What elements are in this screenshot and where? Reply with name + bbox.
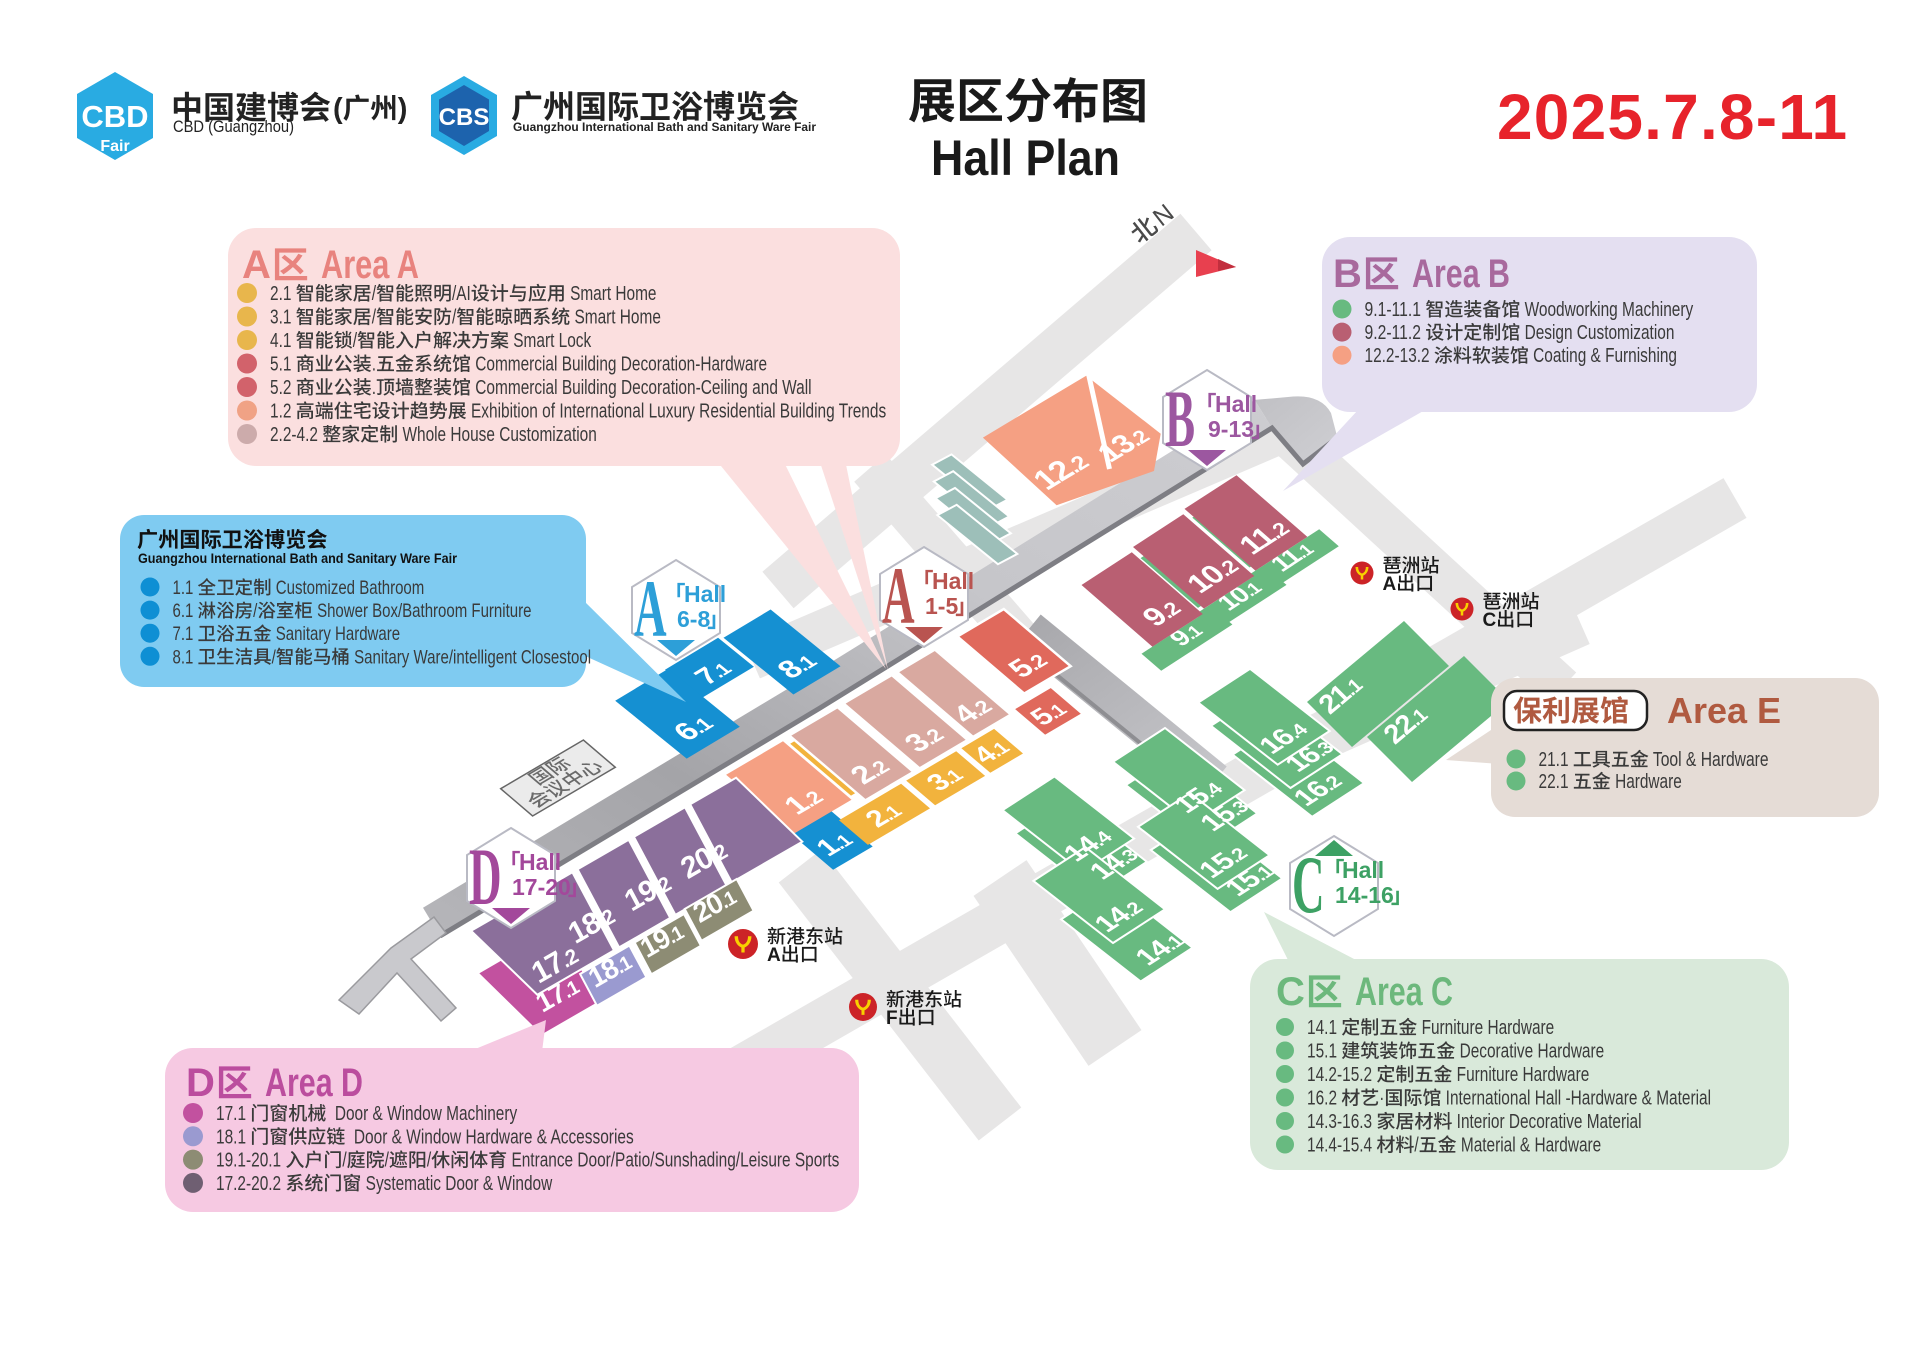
svg-text:Hall: Hall [684,581,726,607]
svg-text:9-13: 9-13 [1208,416,1254,442]
svg-text:Hardware: Hardware [1611,771,1682,793]
svg-text:14.3-16.3: 14.3-16.3 [1307,1111,1376,1133]
svg-text:1.2: 1.2 [270,401,296,423]
svg-text:Hall Plan: Hall Plan [931,130,1120,186]
svg-text:/: / [452,307,457,329]
svg-text:C: C [1292,840,1325,930]
svg-text:A: A [634,564,667,654]
svg-text:Hall: Hall [519,849,561,875]
svg-text:Guangzhou International Bath a: Guangzhou International Bath and Sanitar… [513,120,816,134]
svg-text:C: C [1276,970,1305,1014]
svg-text:3.1: 3.1 [270,307,296,329]
svg-text:1.1: 1.1 [173,577,198,599]
svg-text:7.1: 7.1 [173,623,198,645]
svg-text:D: D [469,832,502,922]
svg-text:Woodworking Machinery: Woodworking Machinery [1520,299,1693,321]
svg-text:16.2: 16.2 [1307,1088,1341,1110]
svg-text:·: · [1379,1088,1384,1110]
svg-text:Door & Window Machinery: Door & Window Machinery [326,1103,517,1125]
svg-text:/: / [342,1150,347,1172]
svg-text:C: C [1483,610,1497,631]
svg-text:14.1: 14.1 [1307,1017,1341,1039]
svg-text:6-8: 6-8 [677,606,710,632]
svg-text:18.1: 18.1 [216,1126,250,1148]
svg-text:14-16: 14-16 [1335,882,1394,908]
svg-text:9.2-11.2: 9.2-11.2 [1365,322,1426,344]
svg-text:Commercial Building Decoration: Commercial Building Decoration-Ceiling a… [471,377,812,399]
svg-text:/AI: /AI [452,283,471,305]
svg-text:Sanitary Hardware: Sanitary Hardware [272,623,401,645]
svg-text:): ) [398,93,408,125]
svg-text:/: / [427,1150,432,1172]
svg-text:A: A [1383,574,1397,595]
svg-text:Systematic Door & Window: Systematic Door & Window [361,1173,552,1195]
svg-text:Hall: Hall [1342,857,1384,883]
svg-text:Area C: Area C [1355,970,1453,1014]
svg-text:9.1-11.1: 9.1-11.1 [1365,299,1426,321]
svg-text:A: A [882,551,915,641]
svg-text:CBD (Guangzhou): CBD (Guangzhou) [173,118,294,136]
svg-text:International Hall -Hardware &: International Hall -Hardware & Material [1441,1088,1711,1110]
svg-text:/: / [372,283,377,305]
svg-text:2.2-4.2: 2.2-4.2 [270,424,322,446]
svg-text:/: / [272,646,277,668]
svg-text:Area E: Area E [1667,690,1781,731]
svg-text:14.4-15.4: 14.4-15.4 [1307,1135,1376,1157]
svg-text:A: A [242,243,271,287]
svg-text:Material & Hardware: Material & Hardware [1457,1135,1602,1157]
svg-text:CBD: CBD [81,99,148,134]
svg-text:(: ( [333,93,343,125]
svg-text:/: / [1414,1135,1419,1157]
svg-text:21.1: 21.1 [1539,749,1573,771]
svg-text:Area B: Area B [1412,252,1510,296]
svg-text:Interior Decorative Material: Interior Decorative Material [1452,1111,1641,1133]
svg-text:17-20: 17-20 [512,874,571,900]
svg-text:B: B [1333,252,1362,296]
svg-text:Customized Bathroom: Customized Bathroom [272,577,425,599]
svg-text:A: A [767,945,781,966]
svg-text:15.1: 15.1 [1307,1041,1341,1063]
svg-text:17.2-20.2: 17.2-20.2 [216,1173,285,1195]
svg-text:Door & Window Hardware & Acces: Door & Window Hardware & Accessories [345,1126,633,1148]
svg-text:5.2: 5.2 [270,377,296,399]
svg-text:Whole House Customization: Whole House Customization [398,424,597,446]
svg-text:Guangzhou International Bath a: Guangzhou International Bath and Sanitar… [138,551,458,566]
svg-text:Hall: Hall [1215,391,1257,417]
svg-text:D: D [186,1061,215,1105]
svg-text:Furniture Hardware: Furniture Hardware [1417,1017,1554,1039]
svg-text:CBS: CBS [439,104,490,131]
svg-text:12.2-13.2: 12.2-13.2 [1365,345,1434,367]
svg-text:Design Customization: Design Customization [1520,322,1674,344]
svg-text:.: . [372,354,376,376]
svg-text:Exhibition of International Lu: Exhibition of International Luxury Resid… [467,401,887,423]
svg-text:/: / [372,307,377,329]
svg-text:.: . [372,377,376,399]
svg-text:17.1: 17.1 [216,1103,250,1125]
svg-text:Smart Home: Smart Home [570,307,661,329]
svg-text:Tool & Hardware: Tool & Hardware [1649,749,1769,771]
svg-text:4.1: 4.1 [270,330,296,352]
svg-text:Area A: Area A [321,243,419,287]
svg-text:5.1: 5.1 [270,354,296,376]
svg-text:Sanitary Ware/intelligent Clos: Sanitary Ware/intelligent Closestool [350,646,591,668]
svg-text:6.1: 6.1 [173,600,198,622]
svg-text:Commercial Building Decoration: Commercial Building Decoration-Hardware [471,354,767,376]
svg-text:19.1-20.1: 19.1-20.1 [216,1150,285,1172]
svg-text:14.2-15.2: 14.2-15.2 [1307,1064,1376,1086]
svg-text:Smart Lock: Smart Lock [509,330,592,352]
svg-text:Hall: Hall [932,568,974,594]
svg-text:/: / [385,1150,390,1172]
svg-text:Furniture Hardware: Furniture Hardware [1452,1064,1589,1086]
svg-text:/: / [253,600,258,622]
svg-text:2025.7.8-11: 2025.7.8-11 [1497,81,1848,153]
svg-text:2.1: 2.1 [270,283,296,305]
svg-text:1-5: 1-5 [925,593,958,619]
svg-text:F: F [886,1008,898,1029]
svg-text:Entrance Door/Patio/Sunshading: Entrance Door/Patio/Sunshading/Leisure S… [507,1150,839,1172]
svg-text:Area D: Area D [265,1061,363,1105]
svg-text:Decorative Hardware: Decorative Hardware [1455,1041,1604,1063]
svg-text:B: B [1165,374,1195,464]
svg-text:8.1: 8.1 [173,646,198,668]
svg-text:Shower Box/Bathroom Furniture: Shower Box/Bathroom Furniture [313,600,532,622]
svg-text:/: / [353,330,358,352]
svg-text:22.1: 22.1 [1539,771,1573,793]
svg-text:Fair: Fair [100,138,129,155]
svg-text:Coating & Furnishing: Coating & Furnishing [1529,345,1677,367]
svg-text:Smart Home: Smart Home [566,283,657,305]
